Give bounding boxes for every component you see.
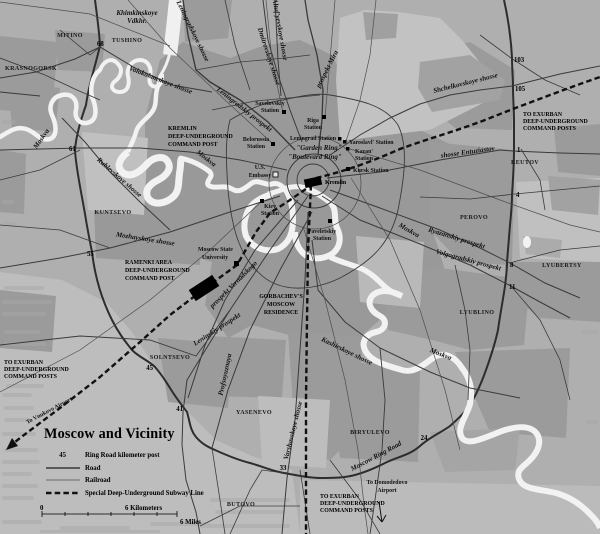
- svg-text:Yaroslavl' Station: Yaroslavl' Station: [349, 140, 394, 146]
- svg-text:11: 11: [509, 284, 516, 291]
- svg-text:KREMLIN: KREMLIN: [168, 126, 198, 132]
- svg-text:RAMENKI AREA: RAMENKI AREA: [125, 260, 173, 266]
- svg-text:COMMAND POSTS: COMMAND POSTS: [4, 374, 58, 380]
- svg-text:Leningrad Station: Leningrad Station: [290, 136, 337, 142]
- svg-text:0: 0: [40, 505, 44, 512]
- svg-text:103: 103: [514, 57, 525, 64]
- svg-text:KUNTSEVO: KUNTSEVO: [95, 210, 132, 216]
- svg-text:LYUBERTSY: LYUBERTSY: [542, 263, 582, 269]
- svg-text:COMMAND POSTS: COMMAND POSTS: [523, 126, 577, 132]
- svg-text:Kremlin: Kremlin: [325, 180, 347, 186]
- svg-text:Ring Road kilometer post: Ring Road kilometer post: [85, 452, 160, 459]
- svg-text:Riga: Riga: [307, 118, 319, 124]
- svg-text:Vdkhr.: Vdkhr.: [127, 17, 147, 25]
- svg-text:4: 4: [516, 192, 520, 199]
- svg-text:TO EXURBAN: TO EXURBAN: [4, 360, 44, 366]
- svg-text:GORBACHEV'S: GORBACHEV'S: [259, 294, 303, 300]
- svg-text:Station: Station: [261, 211, 280, 217]
- svg-text:Station: Station: [247, 144, 266, 150]
- svg-text:55: 55: [87, 251, 94, 258]
- svg-text:To Domodedovo: To Domodedovo: [367, 480, 408, 486]
- svg-text:PEROVO: PEROVO: [460, 215, 488, 221]
- svg-text:DEEP-UNDERGROUND: DEEP-UNDERGROUND: [523, 119, 588, 125]
- svg-text:REUTOV: REUTOV: [511, 160, 539, 166]
- svg-text:U.S.: U.S.: [255, 165, 266, 171]
- svg-text:6 Miles: 6 Miles: [180, 519, 201, 526]
- svg-text:KRASNOGORSK: KRASNOGORSK: [5, 66, 57, 72]
- svg-text:Special Deep-Underground Subwa: Special Deep-Underground Subway Line: [85, 490, 204, 497]
- svg-text:Savelovskiy: Savelovskiy: [255, 101, 285, 107]
- svg-text:Station: Station: [261, 108, 280, 114]
- svg-text:Kiev: Kiev: [264, 204, 276, 210]
- svg-text:68: 68: [97, 41, 104, 48]
- svg-text:33: 33: [280, 465, 287, 472]
- svg-text:Station: Station: [355, 156, 374, 162]
- svg-text:DEEP-UNDERGROUND: DEEP-UNDERGROUND: [4, 367, 69, 373]
- svg-text:45: 45: [146, 365, 153, 372]
- svg-text:Railroad: Railroad: [85, 477, 111, 484]
- svg-text:TUSHINO: TUSHINO: [112, 38, 143, 44]
- svg-text:TO EXURBAN: TO EXURBAN: [320, 494, 360, 500]
- svg-text:45: 45: [59, 452, 66, 459]
- svg-text:Kazan': Kazan': [355, 149, 373, 155]
- svg-text:RESIDENCE: RESIDENCE: [264, 310, 298, 316]
- svg-text:8: 8: [510, 262, 514, 269]
- svg-text:Kursk Station: Kursk Station: [353, 168, 389, 174]
- svg-text:"Garden Ring": "Garden Ring": [296, 144, 341, 152]
- svg-text:41: 41: [176, 406, 183, 413]
- svg-text:DEEP-UNDERGROUND: DEEP-UNDERGROUND: [125, 268, 190, 274]
- svg-text:Belorussia: Belorussia: [243, 137, 269, 143]
- svg-text:DEEP-UNDERGROUND: DEEP-UNDERGROUND: [320, 501, 385, 507]
- svg-text:MITINO: MITINO: [57, 33, 83, 39]
- svg-text:6 Kilometers: 6 Kilometers: [125, 505, 163, 512]
- svg-text:24: 24: [421, 435, 428, 442]
- svg-text:Moscow and Vicinity: Moscow and Vicinity: [44, 426, 175, 442]
- svg-text:BUTOVO: BUTOVO: [227, 502, 255, 508]
- svg-text:COMMAND POST: COMMAND POST: [168, 142, 218, 148]
- svg-text:SOLNTSEVO: SOLNTSEVO: [150, 355, 190, 361]
- svg-text:61: 61: [69, 146, 76, 153]
- svg-text:BIRYULEVO: BIRYULEVO: [350, 430, 390, 436]
- svg-text:Khimkinskoye: Khimkinskoye: [115, 9, 157, 17]
- svg-text:1: 1: [517, 147, 521, 154]
- svg-text:University: University: [202, 255, 228, 261]
- svg-text:MOSCOW: MOSCOW: [267, 302, 295, 308]
- svg-text:Paveletskiy: Paveletskiy: [308, 229, 337, 235]
- svg-text:LYUBLINO: LYUBLINO: [460, 310, 495, 316]
- svg-text:COMMAND POST: COMMAND POST: [125, 276, 175, 282]
- svg-text:Airport: Airport: [377, 488, 396, 494]
- svg-text:TO EXURBAN: TO EXURBAN: [523, 112, 563, 118]
- svg-text:Station: Station: [313, 236, 332, 242]
- svg-text:"Boulevard Ring": "Boulevard Ring": [288, 153, 342, 161]
- svg-text:Embassy: Embassy: [249, 173, 272, 179]
- svg-text:DEEP-UNDERGROUND: DEEP-UNDERGROUND: [168, 134, 233, 140]
- svg-text:Road: Road: [85, 465, 101, 472]
- svg-text:105: 105: [515, 86, 526, 93]
- svg-text:Moscow State: Moscow State: [198, 247, 233, 253]
- svg-text:YASENEVO: YASENEVO: [236, 410, 272, 416]
- svg-text:COMMAND POSTS: COMMAND POSTS: [320, 508, 374, 514]
- svg-text:Station: Station: [304, 125, 323, 131]
